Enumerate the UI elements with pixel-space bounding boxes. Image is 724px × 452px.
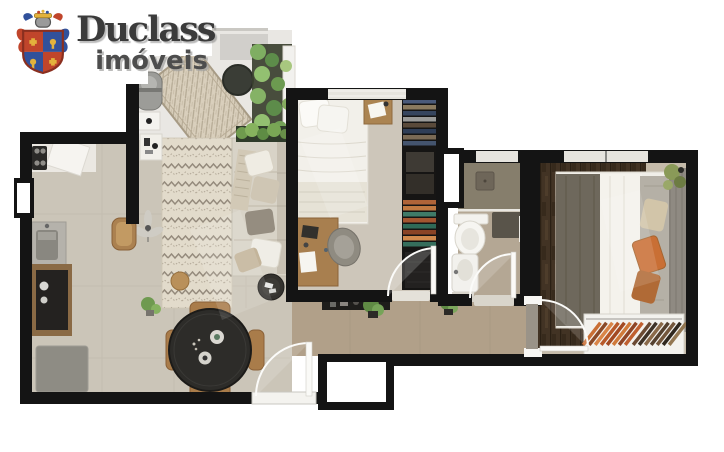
bathroom-doormat <box>474 295 514 306</box>
balcony-edge <box>134 28 268 31</box>
dining-table <box>169 309 251 391</box>
bedroom-2 <box>538 158 688 356</box>
pillow <box>317 105 350 134</box>
bedroom2-door-jamb <box>524 296 542 305</box>
nightstand <box>364 98 392 124</box>
papers <box>299 251 317 273</box>
clothes-rack <box>582 314 688 356</box>
kitchen-window <box>17 183 30 213</box>
bedroom1-doormat <box>392 291 430 301</box>
wall-console <box>140 134 162 160</box>
closet-box <box>406 174 434 194</box>
bathroom-door-leaf <box>511 252 516 298</box>
bedroom2-door-jamb <box>524 348 542 357</box>
wicker-basket <box>171 272 189 290</box>
entrance-door-leaf <box>306 342 312 396</box>
grill <box>136 72 162 130</box>
sofa-pillow <box>244 208 275 236</box>
dark-blanket <box>556 174 602 326</box>
bath-mat <box>492 212 522 238</box>
entry-niche <box>327 362 386 402</box>
bathroom-window <box>476 151 518 162</box>
laptop <box>301 225 319 239</box>
closet-box <box>406 152 434 172</box>
shower-glass <box>458 209 524 212</box>
apartment-floorplan <box>0 0 724 452</box>
kitchen-mat <box>36 346 88 392</box>
kitchen-cabinet <box>32 264 72 336</box>
bedroom2-door-leaf <box>540 346 588 351</box>
bedroom2-door-threshold <box>526 304 538 349</box>
shaft <box>444 154 459 202</box>
balcony-table <box>223 65 253 95</box>
floorplan-image: Duclass imóveis <box>0 0 724 452</box>
cooktop <box>32 146 47 170</box>
bedroom1-door-leaf <box>431 246 436 294</box>
